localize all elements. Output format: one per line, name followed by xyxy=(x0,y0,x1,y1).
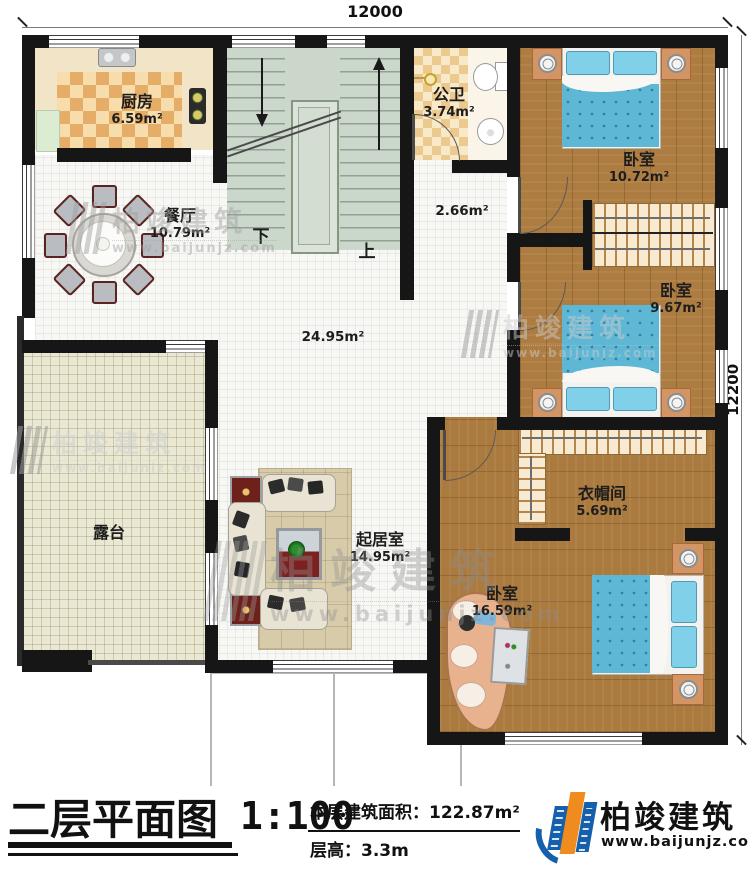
label-hallway: 2.66m² xyxy=(428,203,496,220)
bedroom-mid-area: 9.67m² xyxy=(634,301,718,317)
window-terrace-top xyxy=(166,340,205,353)
bathroom-area: 3.74m² xyxy=(414,105,484,121)
lounge-cushion xyxy=(450,644,478,668)
bed-pillow xyxy=(566,51,610,75)
stairs-down-text: 下 xyxy=(248,227,274,248)
title-underline-thin xyxy=(8,853,238,856)
dining-table-center xyxy=(96,237,110,251)
lounge-cushion xyxy=(456,682,486,708)
label-kitchen: 厨房 6.59m² xyxy=(97,92,177,128)
terrace-corner-block xyxy=(22,650,92,672)
bed-pillow xyxy=(613,51,657,75)
window-top-stairs xyxy=(232,35,295,48)
small-table xyxy=(490,627,530,685)
sofa-pillow xyxy=(289,597,306,612)
wall-stairs-right xyxy=(400,47,414,300)
terrace-rail-left xyxy=(17,316,24,666)
label-bedroom-top: 卧室 10.72m² xyxy=(598,150,680,186)
plan-title: 二层平面图 xyxy=(8,786,238,847)
floor-plan-page: 厨房 6.59m² 餐厅 10.79m² 公卫 3.74m² 卧室 10.72m… xyxy=(0,0,750,869)
closet-name: 衣帽间 xyxy=(558,484,646,504)
sofa-pillow xyxy=(287,477,304,492)
window-right-closet xyxy=(715,208,728,290)
dining-name: 餐厅 xyxy=(138,206,222,226)
dimension-tick xyxy=(17,17,28,28)
closet-rail xyxy=(595,217,710,219)
terrace-edge-bottom xyxy=(88,660,208,665)
closet-hanger-box xyxy=(592,203,715,267)
stairs-arrow-line-down xyxy=(261,58,263,116)
balcony-outline-left xyxy=(210,672,337,790)
floor-height-row: 层高：3.3m xyxy=(310,836,470,861)
stairs-arrow-down xyxy=(256,114,268,127)
brand-logo-icon xyxy=(543,790,595,860)
kitchen-sink xyxy=(98,48,136,67)
label-bedroom-bottom: 卧室 16.59m² xyxy=(460,584,544,620)
stairs-up-text: 上 xyxy=(354,242,380,263)
brand-name: 柏竣建筑 xyxy=(600,792,745,837)
bed-pillow xyxy=(613,387,657,411)
titleblock-divider xyxy=(308,830,520,832)
label-living: 起居室 14.95m² xyxy=(338,530,422,566)
stairwell-inner xyxy=(298,107,330,245)
dimension-tick xyxy=(722,17,733,28)
wall-bedroom-top-bottom xyxy=(507,233,592,247)
dining-area: 10.79m² xyxy=(138,226,222,242)
wardrobe-rack-left xyxy=(518,453,546,525)
stairs-flight-up xyxy=(340,58,400,250)
open-area-value: 24.95m² xyxy=(295,329,371,346)
label-closet: 衣帽间 5.69m² xyxy=(558,484,646,520)
wardrobe-rail-left xyxy=(530,456,532,520)
bathroom-name: 公卫 xyxy=(414,85,484,105)
brand-url: www.baijunjz.com xyxy=(601,834,746,850)
hallway-area: 2.66m² xyxy=(428,203,496,220)
window-bottom-living xyxy=(273,660,393,673)
bathroom-sink xyxy=(477,118,504,145)
wall-bedroom-mid-bottom xyxy=(520,417,715,430)
window-top-hall xyxy=(327,35,365,48)
dining-chair xyxy=(44,233,67,258)
title-block: 二层平面图 1:100 本层建筑面积：122.87m² 层高：3.3m 柏竣建筑… xyxy=(0,786,750,869)
kitchen-stove xyxy=(189,88,206,124)
wall-suite-left xyxy=(427,417,440,745)
stairs-arrow-up xyxy=(373,57,385,70)
terrace-floor xyxy=(22,352,207,664)
kitchen-area: 6.59m² xyxy=(97,112,177,128)
bedroom-bottom-name: 卧室 xyxy=(460,584,544,604)
label-bathroom: 公卫 3.74m² xyxy=(414,85,484,121)
window-bedroom-bottom xyxy=(505,732,642,745)
coffee-table-plant xyxy=(288,541,305,558)
wall-bedroom-mid-left-lower xyxy=(507,330,520,420)
label-terrace: 露台 xyxy=(79,523,139,543)
window-left-dining xyxy=(22,165,35,258)
bedroom-mid-name: 卧室 xyxy=(634,281,718,301)
wall-terrace-top xyxy=(22,340,166,353)
label-stairs-down: 下 xyxy=(248,227,274,248)
label-stairs-up: 上 xyxy=(354,242,380,263)
bedroom-mid-door-leaf xyxy=(518,282,521,330)
bed-pillow xyxy=(671,626,697,668)
wall-bath-bottom xyxy=(452,160,507,173)
nightstand-lamp xyxy=(667,393,686,412)
nightstand-lamp xyxy=(667,54,686,73)
wall-bedroom-mid-left-upper xyxy=(507,247,520,282)
living-area: 14.95m² xyxy=(338,550,422,566)
floor-height-label: 层高： xyxy=(310,841,361,861)
dimension-top-value: 12000 xyxy=(330,2,420,21)
nightstand-lamp xyxy=(679,680,698,699)
wall-bath-bedroom-divider xyxy=(507,35,520,177)
wall-suite-top-right xyxy=(497,417,520,430)
bed-fold xyxy=(650,575,668,673)
bed-blanket xyxy=(592,575,658,673)
label-bedroom-mid: 卧室 9.67m² xyxy=(634,281,718,317)
wall-closet-bottom-right xyxy=(685,528,715,541)
wall-closet-bottom-left xyxy=(515,528,570,541)
wardrobe-rail xyxy=(522,437,702,439)
sofa-pillow xyxy=(233,535,250,553)
suite-door-leaf xyxy=(443,430,446,480)
dimension-line-top xyxy=(22,27,728,28)
side-table-bottom xyxy=(230,594,262,626)
kitchen-fridge xyxy=(36,110,60,152)
dining-chair xyxy=(92,185,117,208)
living-name: 起居室 xyxy=(338,530,422,550)
floor-area-label: 本层建筑面积： xyxy=(310,803,429,823)
nightstand-lamp xyxy=(538,54,557,73)
window-right-bedroom-top xyxy=(715,68,728,148)
bedroom-top-name: 卧室 xyxy=(598,150,680,170)
bedroom-bottom-area: 16.59m² xyxy=(460,604,544,620)
floor-height-value: 3.3m xyxy=(361,841,409,861)
kitchen-name: 厨房 xyxy=(97,92,177,112)
sofa-pillow xyxy=(234,561,250,578)
label-dining: 餐厅 10.79m² xyxy=(138,206,222,242)
closet-rail xyxy=(595,248,710,250)
bedroom-top-area: 10.72m² xyxy=(598,170,680,186)
sofa-pillow xyxy=(267,595,284,611)
window-right-bedroom-mid xyxy=(715,350,728,403)
nightstand-lamp xyxy=(679,549,698,568)
window-terrace-right2 xyxy=(205,553,218,625)
wall-kitchen-bottom xyxy=(57,148,191,162)
floor-area-value: 122.87m² xyxy=(429,803,520,823)
bed-blanket xyxy=(562,84,659,147)
floor-area-row: 本层建筑面积：122.87m² xyxy=(310,798,550,823)
wall-kitchen-right xyxy=(213,47,227,183)
bed-pillow xyxy=(566,387,610,411)
window-top-kitchen xyxy=(49,35,139,48)
wall-closet-stub xyxy=(583,200,592,270)
bed-pillow xyxy=(671,581,697,623)
window-terrace-right1 xyxy=(205,428,218,500)
stairs-arrow-line-up xyxy=(378,70,380,150)
nightstand-lamp xyxy=(538,393,557,412)
dining-chair xyxy=(92,281,117,304)
closet-divider xyxy=(592,232,713,234)
sofa-pillow xyxy=(307,480,323,494)
title-underline-thick xyxy=(8,842,232,848)
label-open-area: 24.95m² xyxy=(295,329,371,346)
closet-area: 5.69m² xyxy=(558,504,646,520)
terrace-name: 露台 xyxy=(79,523,139,543)
bedroom-top-door-leaf xyxy=(518,177,521,233)
